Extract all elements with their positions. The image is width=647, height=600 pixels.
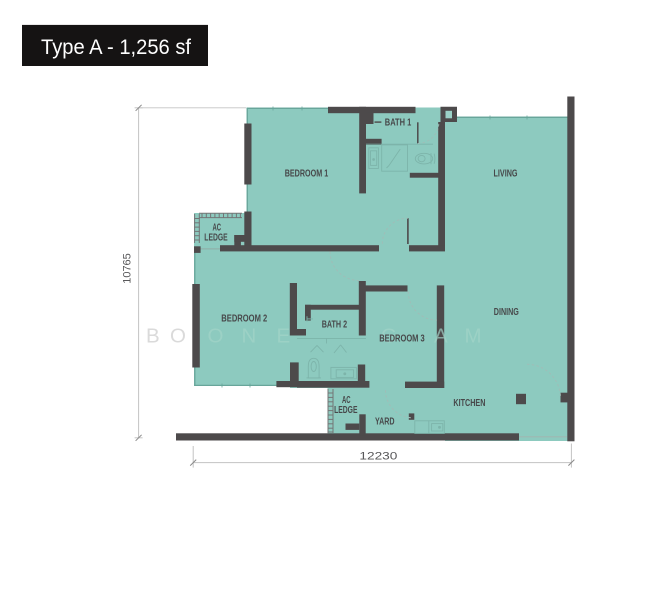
svg-text:LEDGE: LEDGE [334, 405, 358, 416]
svg-text:KITCHEN: KITCHEN [453, 398, 485, 409]
svg-text:BATH 2: BATH 2 [322, 319, 348, 330]
svg-text:BATH 1: BATH 1 [385, 118, 412, 129]
svg-text:LIVING: LIVING [494, 168, 518, 179]
svg-text:A: A [434, 324, 448, 347]
svg-text:LEDGE: LEDGE [204, 233, 228, 244]
svg-text:Type A - 1,256 sf: Type A - 1,256 sf [41, 36, 191, 59]
svg-text:10765: 10765 [122, 253, 134, 284]
svg-text:BEDROOM 2: BEDROOM 2 [221, 313, 267, 324]
svg-text:E: E [277, 324, 291, 347]
svg-text:O: O [208, 324, 224, 347]
svg-text:O: O [170, 324, 186, 347]
svg-text:DINING: DINING [494, 307, 519, 318]
svg-text:B: B [146, 324, 160, 347]
svg-text:YARD: YARD [375, 416, 395, 427]
svg-text:BEDROOM 3: BEDROOM 3 [379, 333, 425, 344]
svg-text:12230: 12230 [359, 451, 397, 463]
svg-text:M: M [465, 324, 482, 347]
svg-text:BEDROOM 1: BEDROOM 1 [285, 169, 329, 180]
svg-text:N: N [242, 324, 257, 347]
